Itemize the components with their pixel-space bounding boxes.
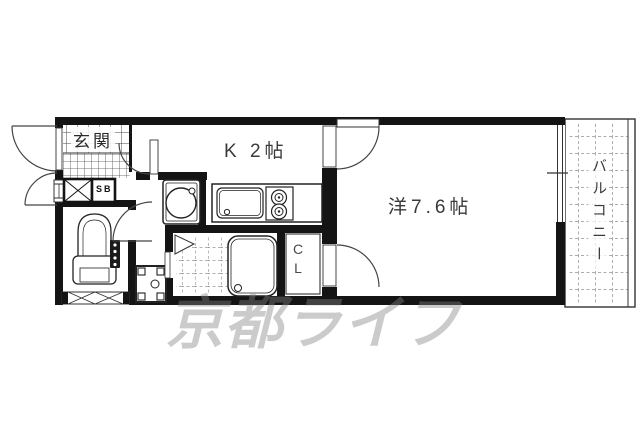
- floorplan-image: 玄関 K 2帖 洋7.6帖 バルコニー C L SB 京都ライフ: [0, 0, 640, 427]
- balcony-label: バルコニー: [588, 158, 608, 268]
- watermark-text: 京都ライフ: [162, 276, 478, 360]
- window-icon: [54, 180, 64, 202]
- stove-icon: [266, 187, 293, 220]
- floorplan-drawing: [0, 0, 640, 427]
- kitchen-counter: [212, 184, 322, 222]
- balcony-window-icon: [547, 125, 568, 222]
- entrance-label: 玄関: [71, 127, 115, 152]
- bathroom-doorway: [165, 252, 170, 278]
- washbasin-icon: [163, 180, 200, 224]
- closet-label: C L: [286, 240, 310, 278]
- kitchen-label: K 2帖: [224, 136, 288, 163]
- main-room-label: 洋7.6帖: [388, 192, 472, 219]
- washing-machine-pan-icon: [136, 266, 166, 302]
- kitchen-sink-icon: [217, 188, 263, 218]
- room-door-icon: [323, 119, 379, 169]
- shoebox-label: SB: [96, 184, 113, 194]
- closet-label-c: C: [286, 240, 310, 259]
- toilet-icon: [73, 214, 120, 284]
- toilet-window-icon: [62, 292, 129, 304]
